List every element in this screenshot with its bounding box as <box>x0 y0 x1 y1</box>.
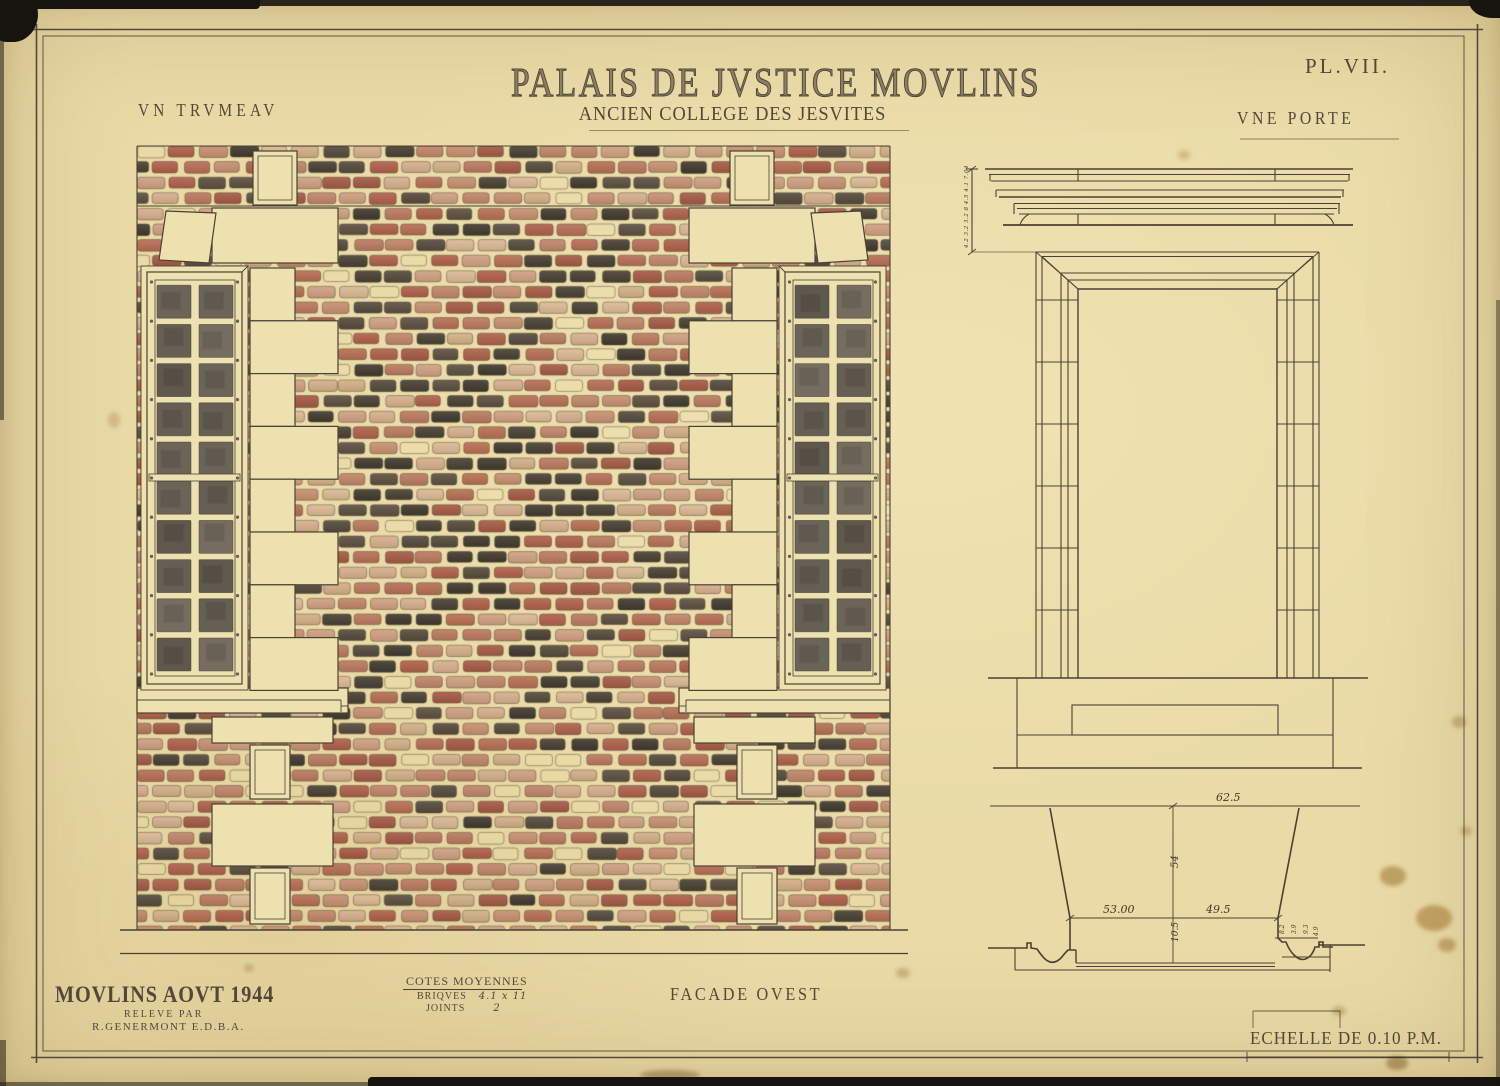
briques-label: BRIQVES <box>417 991 467 1002</box>
joints-value: 2 <box>493 1003 500 1014</box>
dim-inner-width: 49.5 <box>1205 903 1231 916</box>
note-briques: BRIQVES4.1 x 11 <box>417 991 527 1002</box>
stone-blocks <box>137 151 890 924</box>
label-trumeau: VN TRVMEAV <box>138 100 279 121</box>
plate-number: PL.VII. <box>1305 54 1390 79</box>
window <box>141 266 248 690</box>
dim-outer-width: 53.00 <box>1103 903 1135 916</box>
dim-small-3: 9.3 <box>1303 924 1310 934</box>
joints-label: JOINTS <box>426 1003 465 1014</box>
place-date-label: MOVLINS AOVT 1944 <box>55 982 274 1008</box>
survey-credit-line1: RELEVE PAR <box>124 1009 203 1020</box>
door-jamb-section <box>988 803 1365 972</box>
door-base <box>988 678 1368 768</box>
briques-value: 4.1 x 11 <box>479 991 528 1002</box>
survey-credit-line2: R.GENERMONT E.D.B.A. <box>92 1021 245 1033</box>
label-porte: VNE PORTE <box>1237 108 1354 129</box>
dim-cornice-stack: 4.2 3.2 3.2 8 4.5 4.1 7.04 <box>964 165 970 249</box>
dimension-texts: 62.5 53.00 49.5 54 10.5 8.2 3.9 9.3 4.9 … <box>964 165 1320 942</box>
door-frame <box>1036 252 1319 678</box>
dim-total-width: 62.5 <box>1216 791 1241 804</box>
window <box>779 266 886 690</box>
dim-small-2: 3.9 <box>1291 924 1298 934</box>
dim-small-1: 8.2 <box>1279 924 1286 934</box>
note-joints: JOINTS2 <box>426 1003 501 1014</box>
dim-depth: 54 <box>1170 855 1181 868</box>
plate-title: PALAIS DE JVSTICE MOVLINS <box>511 58 921 106</box>
dim-jamb: 10.5 <box>1171 922 1181 942</box>
notes-title: COTES MOYENNES <box>406 974 528 989</box>
scanned-architectural-plate: { "plate": { "title": "PALAIS DE JVSTICE… <box>0 0 1500 1086</box>
scale-label: ECHELLE DE 0.10 P.M. <box>1250 1028 1442 1049</box>
door-cornice <box>966 166 1353 255</box>
dim-small-4: 4.9 <box>1313 926 1320 937</box>
misc-underlines <box>403 131 1449 1063</box>
facade-label: FACADE OVEST <box>670 984 822 1005</box>
drawing-overlay: 62.5 53.00 49.5 54 10.5 8.2 3.9 9.3 4.9 … <box>0 0 1500 1086</box>
plate-subtitle: ANCIEN COLLEGE DES JESVITES <box>574 103 891 126</box>
